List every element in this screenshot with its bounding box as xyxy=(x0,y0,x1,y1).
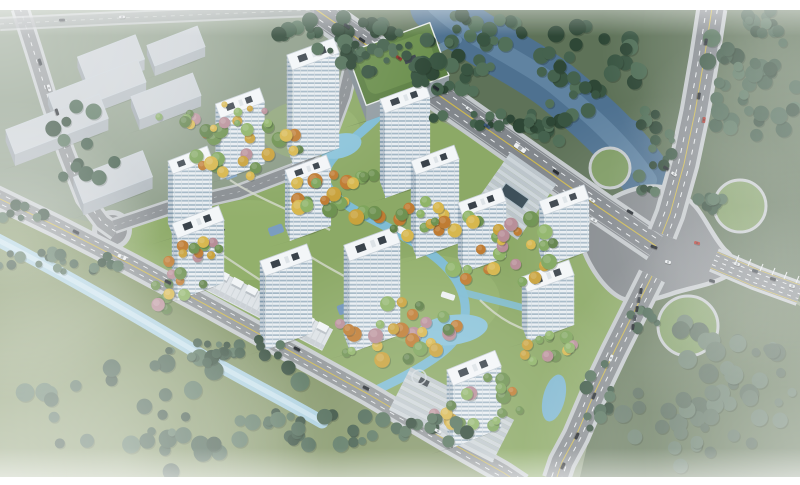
frame-border-top xyxy=(0,0,800,10)
haze-right xyxy=(640,10,800,477)
layer-atmosphere xyxy=(0,0,800,485)
aerial-rendering: Aerial rendering of a riverside resident… xyxy=(0,0,800,485)
scene-canvas xyxy=(0,0,800,485)
frame-border-bottom xyxy=(0,477,800,485)
